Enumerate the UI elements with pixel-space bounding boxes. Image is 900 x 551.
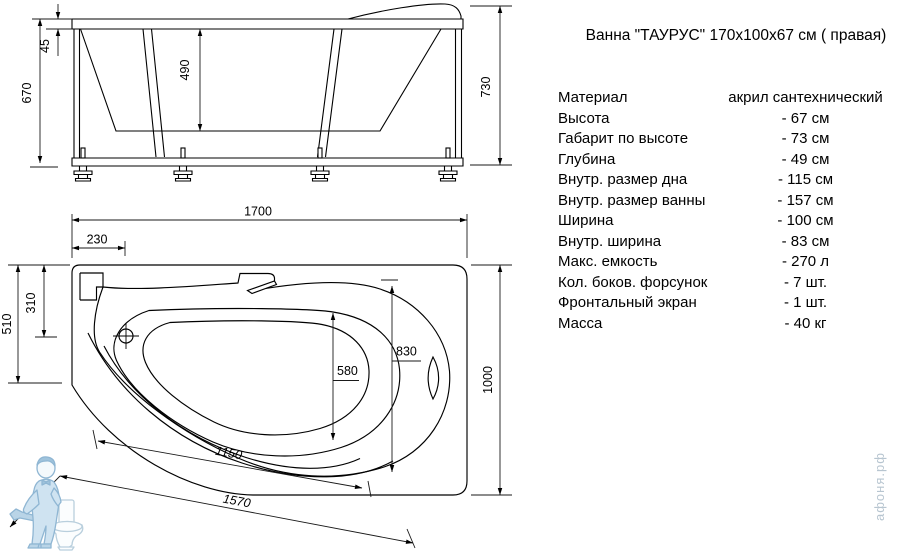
- support-strut-left: [143, 29, 165, 157]
- table-row: Габарит по высоте - 73 см: [558, 130, 900, 151]
- side-view-outline: [72, 4, 463, 181]
- dim-rim-height: 45: [38, 39, 52, 53]
- side-view-drawing: 45 670 490 730: [0, 0, 530, 200]
- spec-value: - 67 см: [708, 110, 900, 127]
- spec-value: - 83 см: [708, 233, 900, 250]
- spec-label: Внутр. размер дна: [558, 171, 687, 188]
- spec-value: - 49 см: [708, 151, 900, 168]
- adjustable-feet: [74, 166, 457, 181]
- spec-label: Внутр. размер ванны: [558, 192, 705, 209]
- dim-width-1000: 1000: [481, 366, 495, 394]
- dim-length-1700: 1700: [244, 205, 272, 219]
- spec-label: Габарит по высоте: [558, 130, 688, 147]
- right-wall: [456, 29, 462, 158]
- spec-value: - 40 кг: [708, 315, 900, 332]
- table-row: Глубина - 49 см: [558, 151, 900, 172]
- dim-height-670: 670: [20, 83, 34, 104]
- plan-view-outline: [72, 265, 467, 495]
- table-row: Кол. боков. форсунок - 7 шт.: [558, 274, 900, 295]
- support-strut-right: [318, 29, 343, 157]
- spec-value: - 7 шт.: [708, 274, 900, 291]
- bowl-profile: [81, 29, 442, 131]
- dim-overall-height-730: 730: [479, 77, 493, 98]
- deck-outline: [72, 265, 467, 495]
- plumber-watermark-icon: [6, 448, 108, 551]
- spec-value: - 157 см: [708, 192, 900, 209]
- base-frame: [72, 158, 463, 166]
- headrest-profile: [348, 4, 461, 19]
- spec-label: Материал: [558, 89, 628, 106]
- spec-label: Глубина: [558, 151, 615, 168]
- dim-drain-offset-310: 310: [24, 293, 38, 314]
- spec-value: - 115 см: [708, 171, 900, 188]
- spec-label: Ширина: [558, 212, 613, 229]
- dim-inner-width-830: 830: [396, 345, 417, 359]
- bathtub-spec-sheet: { "title": "Ванна \"ТАУРУС\" 170x100x67 …: [0, 0, 900, 551]
- spec-label: Фронтальный экран: [558, 294, 697, 311]
- table-row: Макс. емкость - 270 л: [558, 253, 900, 274]
- table-row: Внутр. размер ванны - 157 см: [558, 192, 900, 213]
- table-row: Материал акрил сантехнический: [558, 89, 900, 110]
- spec-label: Кол. боков. форсунок: [558, 274, 707, 291]
- spec-value: - 100 см: [708, 212, 900, 229]
- table-row: Фронтальный экран - 1 шт.: [558, 294, 900, 315]
- spec-value: акрил сантехнический: [708, 89, 900, 106]
- left-wall: [74, 29, 80, 158]
- frame-bolts: [81, 148, 450, 158]
- spec-label: Внутр. ширина: [558, 233, 661, 250]
- spec-label: Высота: [558, 110, 610, 127]
- spec-label: Макс. емкость: [558, 253, 658, 270]
- brand-watermark: афоня.рф: [872, 426, 887, 521]
- dim-head-offset-230: 230: [87, 233, 108, 247]
- table-row: Внутр. размер дна - 115 см: [558, 171, 900, 192]
- table-row: Масса - 40 кг: [558, 315, 900, 336]
- rim-bar: [72, 19, 463, 29]
- plumber-shoes: [28, 544, 51, 548]
- dim-depth-490: 490: [178, 60, 192, 81]
- spec-value: - 1 шт.: [708, 294, 900, 311]
- dim-left-width-510: 510: [0, 314, 14, 335]
- spec-table: Материал акрил сантехнический Высота - 6…: [558, 89, 900, 335]
- spec-value: - 270 л: [708, 253, 900, 270]
- dim-bottom-width-580: 580: [337, 364, 358, 378]
- table-row: Ширина - 100 см: [558, 212, 900, 233]
- spec-label: Масса: [558, 315, 602, 332]
- page-title: Ванна "ТАУРУС" 170x100x67 см ( правая): [556, 27, 900, 45]
- table-row: Высота - 67 см: [558, 110, 900, 131]
- table-row: Внутр. ширина - 83 см: [558, 233, 900, 254]
- spec-value: - 73 см: [708, 130, 900, 147]
